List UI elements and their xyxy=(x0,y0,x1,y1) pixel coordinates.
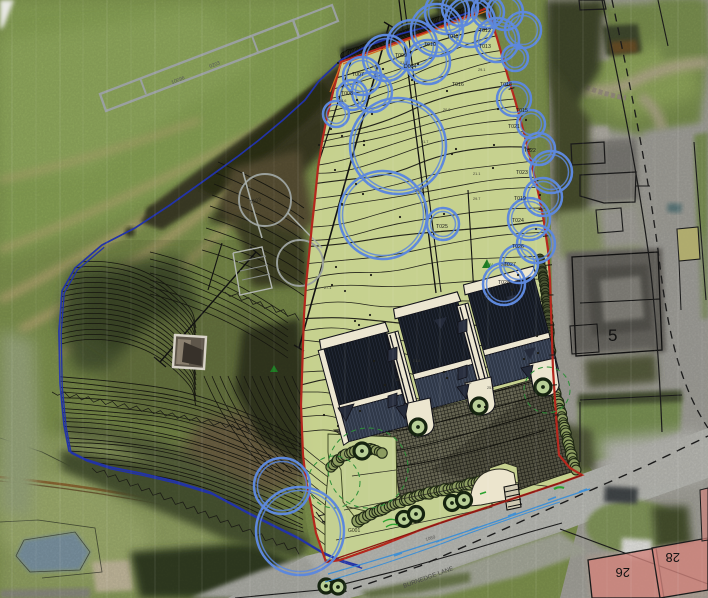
svg-text:T008: T008 xyxy=(341,91,353,97)
svg-text:T028: T028 xyxy=(498,280,510,286)
svg-text:T009: T009 xyxy=(395,53,407,59)
svg-text:5: 5 xyxy=(608,326,617,345)
svg-text:T012: T012 xyxy=(479,28,491,34)
svg-text:T026: T026 xyxy=(512,244,524,250)
svg-text:T015: T015 xyxy=(516,108,528,114)
svg-text:29.6: 29.6 xyxy=(501,263,508,267)
svg-text:20.0: 20.0 xyxy=(443,108,450,112)
svg-text:G001: G001 xyxy=(348,528,360,534)
svg-text:T025: T025 xyxy=(436,224,448,230)
svg-text:21.1: 21.1 xyxy=(400,61,407,65)
svg-text:29.1: 29.1 xyxy=(478,68,485,72)
svg-text:T016: T016 xyxy=(452,82,464,88)
svg-text:26.0: 26.0 xyxy=(464,381,471,385)
svg-text:T019: T019 xyxy=(514,196,526,202)
svg-text:25.8: 25.8 xyxy=(396,378,403,382)
svg-text:T013: T013 xyxy=(479,44,491,50)
svg-text:T024: T024 xyxy=(512,218,524,224)
svg-text:20.2: 20.2 xyxy=(415,189,422,193)
svg-text:T011: T011 xyxy=(447,34,459,40)
svg-text:27.1: 27.1 xyxy=(324,286,331,290)
svg-text:T007: T007 xyxy=(352,72,364,78)
svg-text:T022: T022 xyxy=(524,148,536,154)
svg-text:21.1: 21.1 xyxy=(473,172,480,176)
svg-text:29.7: 29.7 xyxy=(473,197,480,201)
svg-text:T010: T010 xyxy=(424,42,436,48)
svg-text:T023: T023 xyxy=(516,170,528,176)
svg-text:T018: T018 xyxy=(500,82,512,88)
svg-text:21.7: 21.7 xyxy=(421,140,428,144)
svg-text:T021: T021 xyxy=(508,124,520,130)
svg-text:26: 26 xyxy=(616,565,630,580)
